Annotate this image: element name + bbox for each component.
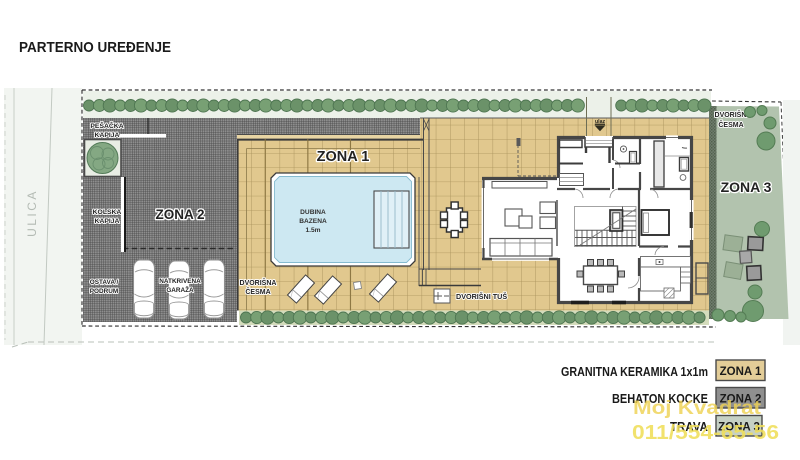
svg-text:ZONA 1: ZONA 1 bbox=[317, 149, 370, 165]
svg-text:PEŠAČKA: PEŠAČKA bbox=[90, 121, 123, 130]
svg-text:ULICA: ULICA bbox=[25, 189, 39, 237]
svg-text:OSTAVA /: OSTAVA / bbox=[90, 279, 119, 286]
svg-text:Moj Kvadrat: Moj Kvadrat bbox=[633, 398, 762, 419]
svg-text:BAZENA: BAZENA bbox=[299, 218, 327, 225]
svg-text:PARTERNO UREĐENJE: PARTERNO UREĐENJE bbox=[19, 39, 171, 56]
svg-text:PODRUM: PODRUM bbox=[90, 288, 118, 295]
svg-text:DVORIŠNA: DVORIŠNA bbox=[240, 278, 277, 287]
svg-text:ZONA 2: ZONA 2 bbox=[155, 207, 204, 222]
svg-text:ČESMA: ČESMA bbox=[718, 120, 743, 129]
svg-text:NATKRIVENA: NATKRIVENA bbox=[159, 278, 201, 285]
svg-text:ZONA 1: ZONA 1 bbox=[720, 366, 762, 378]
svg-text:1.5m: 1.5m bbox=[305, 227, 320, 234]
svg-text:KAPIJA: KAPIJA bbox=[95, 218, 120, 225]
svg-text:011/554-65-56: 011/554-65-56 bbox=[632, 422, 779, 444]
svg-text:DVORIŠNI TUŠ: DVORIŠNI TUŠ bbox=[456, 292, 507, 301]
svg-text:GARAŽA: GARAŽA bbox=[166, 285, 194, 294]
svg-text:KAPIJA: KAPIJA bbox=[95, 132, 120, 139]
svg-text:ZONA 3: ZONA 3 bbox=[721, 179, 772, 195]
svg-text:GRANITNA KERAMIKA 1x1m: GRANITNA KERAMIKA 1x1m bbox=[561, 365, 708, 379]
svg-text:KOLSKA: KOLSKA bbox=[93, 209, 122, 216]
svg-text:DUBINA: DUBINA bbox=[300, 209, 326, 216]
svg-text:ČESMA: ČESMA bbox=[245, 287, 270, 296]
